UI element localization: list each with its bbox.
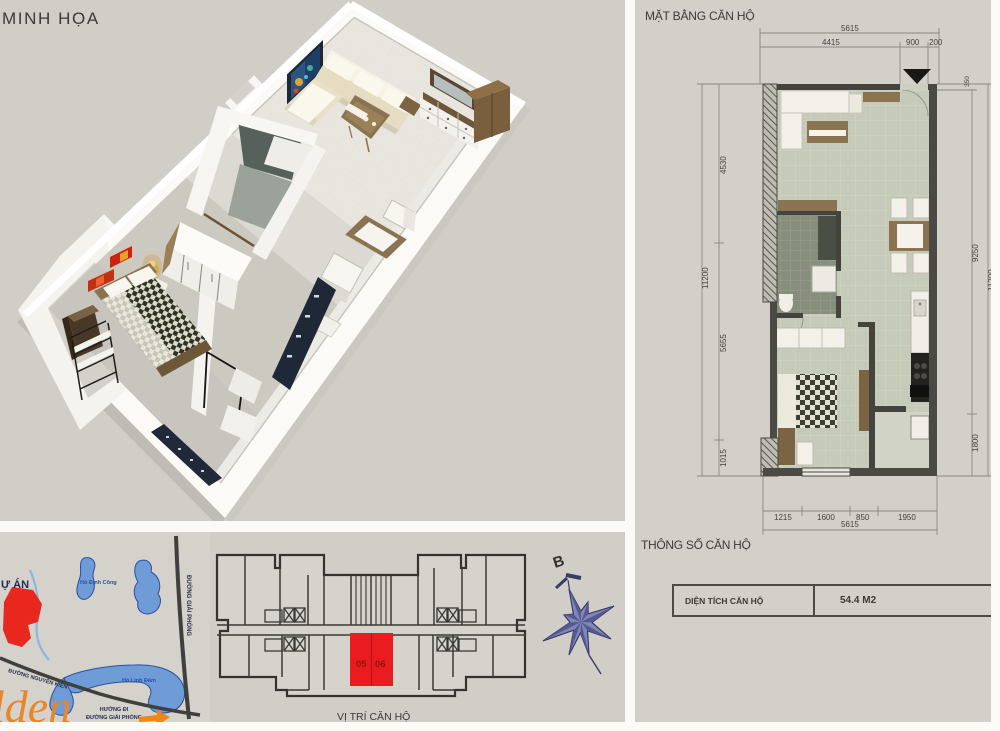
svg-text:ĐƯỜNG GIẢI PHÓNG: ĐƯỜNG GIẢI PHÓNG: [86, 713, 142, 721]
svg-text:Hồ Linh Đàm: Hồ Linh Đàm: [122, 678, 156, 684]
svg-text:350: 350: [964, 76, 971, 87]
svg-text:900: 900: [906, 38, 920, 47]
svg-text:1600: 1600: [817, 513, 835, 522]
svg-text:11200: 11200: [701, 267, 710, 289]
svg-text:B: B: [551, 552, 567, 572]
svg-text:1800: 1800: [971, 434, 980, 452]
svg-text:1015: 1015: [719, 449, 728, 467]
svg-text:Ự ÁN: Ự ÁN: [1, 578, 29, 591]
svg-text:5615: 5615: [841, 520, 859, 529]
svg-text:200: 200: [929, 38, 943, 47]
svg-text:06: 06: [375, 659, 386, 670]
svg-text:HƯỚNG ĐI: HƯỚNG ĐI: [100, 705, 129, 713]
svg-text:9250: 9250: [971, 244, 980, 262]
svg-text:ĐƯỜNG GIẢI PHÓNG: ĐƯỜNG GIẢI PHÓNG: [185, 575, 193, 636]
svg-text:4530: 4530: [719, 156, 728, 174]
svg-text:05: 05: [356, 659, 367, 670]
svg-text:Hồ Định Công: Hồ Định Công: [80, 580, 117, 586]
svg-text:5655: 5655: [719, 334, 728, 352]
svg-text:4415: 4415: [822, 38, 840, 47]
svg-text:1215: 1215: [774, 513, 792, 522]
svg-text:5615: 5615: [841, 24, 859, 33]
svg-text:1950: 1950: [898, 513, 916, 522]
svg-text:lden: lden: [0, 681, 71, 722]
